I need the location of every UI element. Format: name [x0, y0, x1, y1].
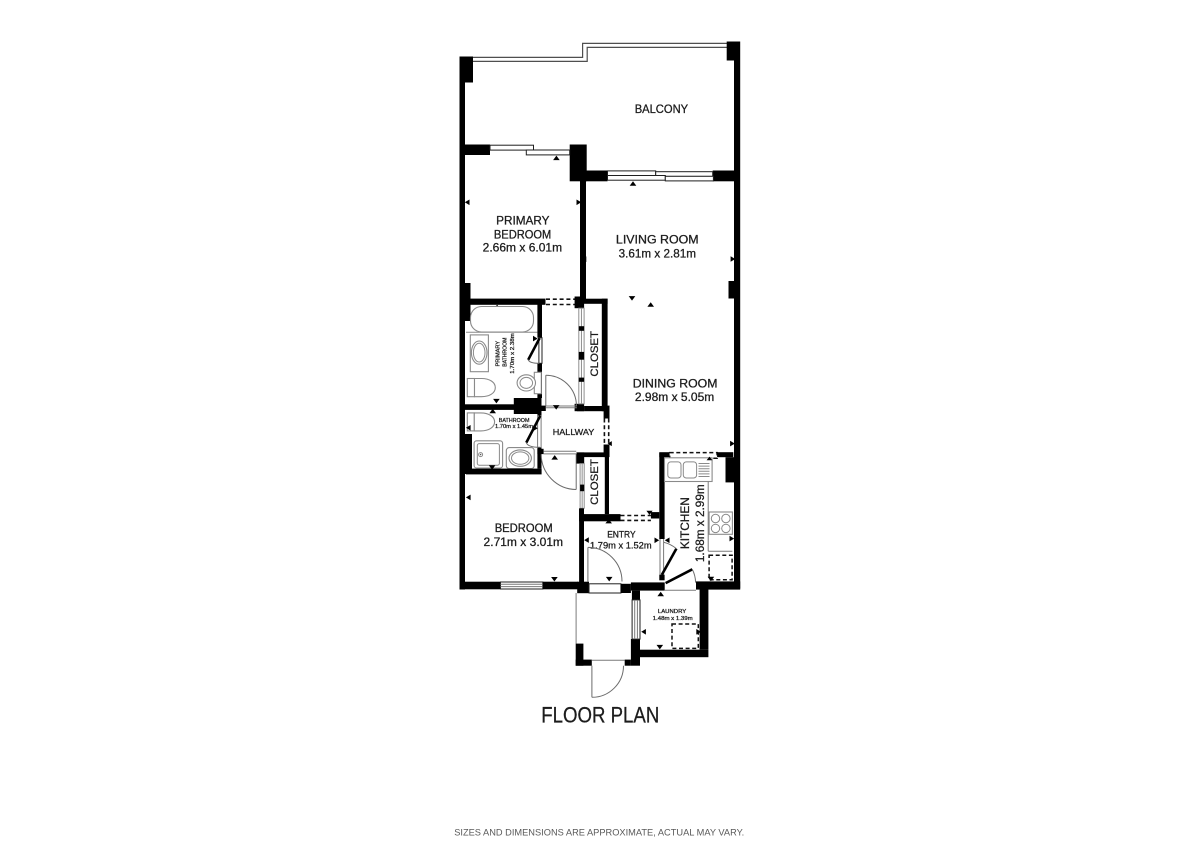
- svg-text:SIZES AND DIMENSIONS ARE APPRO: SIZES AND DIMENSIONS ARE APPROXIMATE, AC…: [454, 827, 744, 837]
- svg-text:PRIMARY: PRIMARY: [496, 215, 550, 227]
- svg-text:ENTRY: ENTRY: [607, 529, 636, 539]
- svg-text:BEDROOM: BEDROOM: [495, 523, 553, 535]
- svg-text:BEDROOM: BEDROOM: [494, 230, 551, 242]
- svg-text:1.70m x 2.38m: 1.70m x 2.38m: [510, 333, 516, 374]
- svg-text:LIVING ROOM: LIVING ROOM: [616, 235, 699, 247]
- svg-text:1.48m x 1.39m: 1.48m x 1.39m: [653, 616, 693, 622]
- svg-text:1.68m x 2.99m: 1.68m x 2.99m: [695, 484, 707, 562]
- svg-text:FLOOR PLAN: FLOOR PLAN: [541, 702, 659, 727]
- svg-text:2.98m x 5.05m: 2.98m x 5.05m: [635, 392, 714, 404]
- svg-text:HALLWAY: HALLWAY: [553, 427, 595, 437]
- svg-text:BALCONY: BALCONY: [635, 103, 689, 116]
- svg-text:CLOSET: CLOSET: [589, 331, 601, 377]
- svg-text:PRIMARY: PRIMARY: [496, 341, 502, 367]
- svg-text:1.70m x 1.45m: 1.70m x 1.45m: [495, 424, 533, 430]
- svg-text:2.71m x 3.01m: 2.71m x 3.01m: [484, 537, 564, 549]
- svg-text:2.66m x 6.01m: 2.66m x 6.01m: [483, 243, 563, 255]
- svg-text:LAUNDRY: LAUNDRY: [658, 609, 686, 615]
- svg-text:CLOSET: CLOSET: [589, 459, 601, 505]
- svg-text:3.61m x 2.81m: 3.61m x 2.81m: [619, 248, 696, 260]
- svg-text:BATHROOM: BATHROOM: [503, 338, 509, 367]
- svg-text:BATHROOM: BATHROOM: [499, 418, 530, 424]
- svg-text:KITCHEN: KITCHEN: [680, 497, 692, 549]
- svg-text:DINING ROOM: DINING ROOM: [633, 378, 718, 390]
